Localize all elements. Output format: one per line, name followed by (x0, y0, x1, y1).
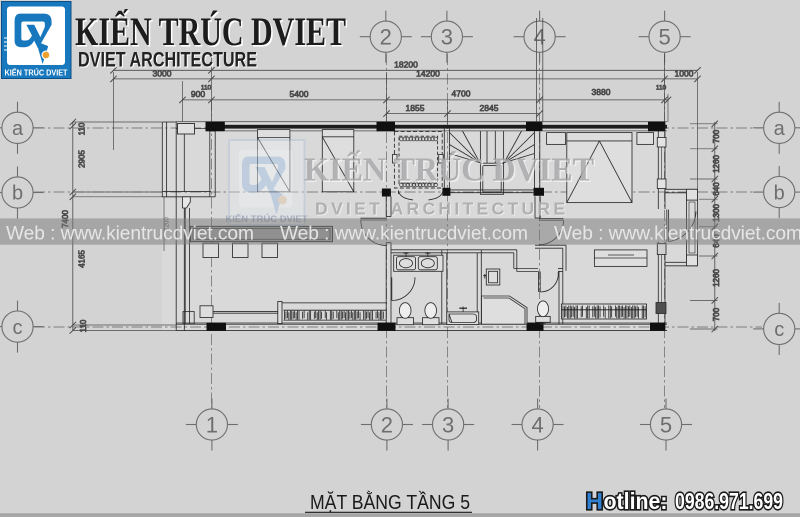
svg-text:a: a (774, 118, 786, 140)
svg-text:1260: 1260 (712, 269, 721, 287)
svg-text:700: 700 (712, 307, 721, 321)
svg-text:Web : www.kientrucdviet.com: Web : www.kientrucdviet.com (554, 224, 800, 245)
svg-text:700: 700 (712, 129, 721, 143)
svg-text:2845: 2845 (480, 103, 499, 113)
svg-text:Web : www.kientrucdviet.com: Web : www.kientrucdviet.com (6, 224, 254, 245)
svg-text:1: 1 (206, 412, 218, 437)
svg-text:4: 4 (533, 25, 545, 50)
svg-text:0986.971.699: 0986.971.699 (675, 488, 783, 514)
svg-text:3880: 3880 (592, 87, 611, 97)
svg-text:2905: 2905 (78, 150, 87, 168)
svg-text:110: 110 (656, 85, 667, 92)
svg-text:Web : www.kientrucdviet.com: Web : www.kientrucdviet.com (280, 224, 528, 245)
svg-text:2: 2 (380, 25, 392, 50)
svg-text:110: 110 (201, 85, 212, 92)
svg-text:4: 4 (531, 412, 543, 437)
svg-text:b: b (12, 183, 23, 205)
svg-text:3: 3 (441, 25, 453, 50)
svg-text:4165: 4165 (78, 250, 87, 268)
svg-text:c: c (13, 317, 23, 339)
svg-text:4700: 4700 (452, 89, 471, 99)
svg-text:640: 640 (712, 182, 721, 196)
svg-text:110: 110 (79, 319, 88, 332)
svg-text:1260: 1260 (712, 155, 721, 173)
svg-text:2: 2 (381, 412, 393, 437)
svg-text:b: b (774, 182, 785, 204)
svg-text:DVIET ARCHITECTURE: DVIET ARCHITECTURE (78, 49, 257, 72)
svg-text:1855: 1855 (406, 103, 425, 113)
svg-text:18200: 18200 (394, 60, 418, 70)
svg-text:otline:: otline: (604, 488, 668, 514)
svg-text:5: 5 (658, 25, 670, 50)
svg-text:1000: 1000 (675, 68, 694, 78)
svg-text:KIẾN TRÚC DVIET: KIẾN TRÚC DVIET (304, 150, 594, 189)
svg-text:5400: 5400 (290, 89, 309, 99)
svg-text:a: a (12, 118, 24, 140)
svg-text:c: c (774, 319, 784, 341)
svg-text:110: 110 (78, 122, 87, 135)
svg-text:KIẾN TRÚC DVIET: KIẾN TRÚC DVIET (5, 67, 69, 78)
svg-text:H: H (586, 488, 603, 514)
svg-text:3: 3 (442, 412, 454, 437)
svg-text:MẶT BẰNG TẦNG 5: MẶT BẰNG TẦNG 5 (310, 490, 470, 514)
svg-text:KIẾN TRÚC DVIET: KIẾN TRÚC DVIET (75, 9, 346, 54)
svg-text:5: 5 (660, 412, 672, 437)
svg-text:14200: 14200 (416, 68, 440, 78)
